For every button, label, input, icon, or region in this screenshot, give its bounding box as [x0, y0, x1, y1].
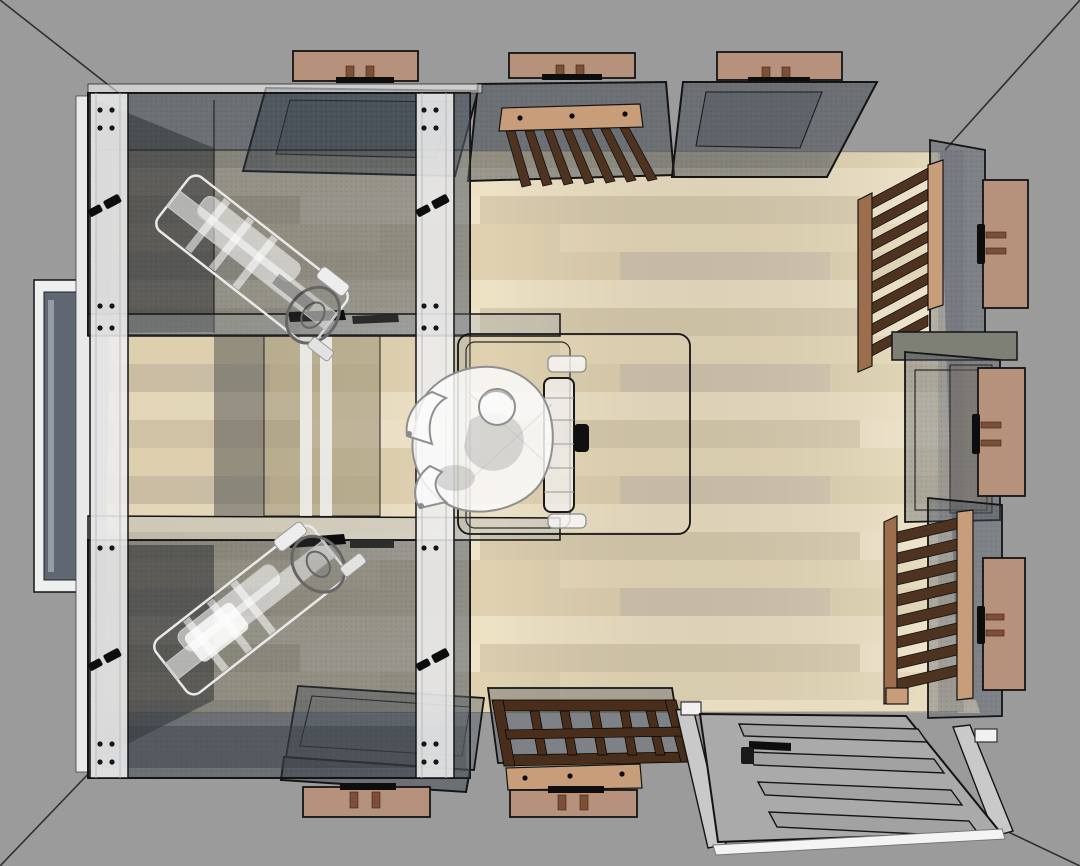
glass-front-band [96, 726, 466, 768]
elbow-joint [418, 503, 424, 509]
mount-peg [558, 795, 566, 810]
mount-bracket [548, 786, 604, 793]
mount-bracket [340, 783, 396, 790]
mount-peg [981, 422, 1001, 428]
panel-handle [977, 224, 985, 264]
enclosure-top-rail [88, 84, 482, 93]
panel-handle [972, 414, 980, 454]
elbow-joint [406, 431, 412, 437]
render-stage [0, 0, 1080, 866]
door-jamb [975, 729, 997, 742]
screw [569, 113, 574, 118]
exterior-panel [983, 558, 1025, 690]
exterior-panel [717, 52, 842, 80]
screw [517, 115, 522, 120]
exterior-panel [983, 180, 1028, 308]
glass-texture [88, 93, 470, 335]
mount-peg [350, 792, 358, 808]
screw [622, 111, 627, 116]
seat-tab [548, 514, 586, 528]
mount-bracket [542, 74, 602, 80]
mount-peg [986, 232, 1006, 238]
mount-peg [981, 440, 1001, 446]
backrest-side-rail [884, 516, 897, 704]
screw [522, 775, 527, 780]
screw [567, 773, 572, 778]
mount-peg [372, 792, 380, 808]
backrest-foot [886, 688, 908, 704]
backrest-side-rail [858, 193, 872, 372]
right-window-unit[interactable] [892, 332, 1025, 522]
screw [619, 771, 624, 776]
person-shading [435, 465, 475, 491]
exterior-panel [510, 790, 637, 817]
mid-white-strip [300, 336, 312, 516]
duckboard [492, 700, 692, 766]
window-reflection [48, 300, 54, 572]
3d-viewport[interactable] [0, 0, 1080, 866]
panel-handle [977, 606, 985, 644]
seat-back-bracket [574, 424, 589, 452]
headrest-tab [548, 356, 586, 372]
mid-white-strip [320, 336, 332, 516]
duckboard-slat [492, 700, 678, 711]
mount-peg [986, 630, 1004, 636]
mullion-left [90, 93, 128, 778]
door-handle-base [741, 747, 754, 764]
exterior-panel [293, 51, 418, 81]
mount-bracket [336, 77, 394, 83]
mount-peg [986, 614, 1004, 620]
backrest-rail [928, 160, 943, 310]
exterior-panel [978, 368, 1025, 496]
mount-peg [580, 795, 588, 810]
shelf-hardware [350, 540, 394, 548]
backrest-rail [957, 510, 973, 700]
mount-peg [986, 248, 1006, 254]
exterior-panel [303, 787, 430, 817]
mid-dark-zone [214, 336, 264, 516]
door-jamb [681, 702, 701, 715]
